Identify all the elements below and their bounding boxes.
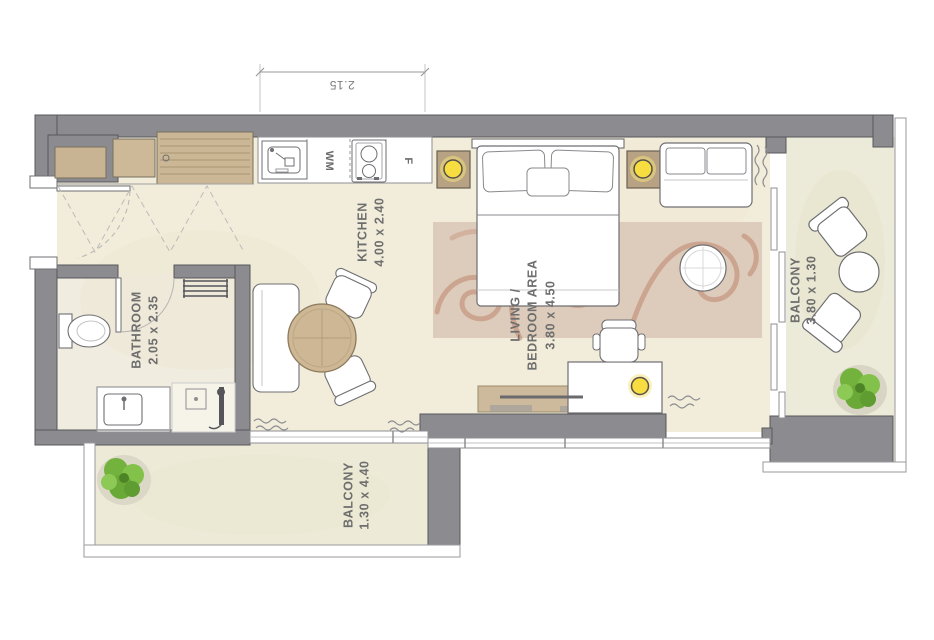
balcony-table <box>839 252 879 292</box>
kitchen-label: KITCHEN <box>355 202 369 262</box>
dimension-value: 2.15 <box>329 78 354 92</box>
nightstand-left <box>437 151 470 188</box>
washing-machine-label: WM <box>323 151 335 172</box>
wall-bathroom-right <box>235 265 250 445</box>
hob-icon <box>352 140 386 182</box>
nightstand-right <box>627 151 660 188</box>
wardrobe-cabinet <box>113 139 155 177</box>
wall-slider-stub <box>766 137 786 153</box>
vanity-sink-icon <box>97 387 170 432</box>
entry-door-leaf <box>57 186 130 191</box>
living-size-label: 3.80 x 4.50 <box>543 280 557 349</box>
railing-balcony-right-side <box>895 118 906 472</box>
toilet-icon <box>59 314 110 348</box>
lamp-icon <box>634 160 652 178</box>
sliding-door-balcony-right <box>771 188 785 418</box>
coffee-table-icon <box>680 245 726 291</box>
wall-top-right-corner <box>873 115 893 147</box>
wall-bathroom-top-left <box>57 265 118 278</box>
balcony-bottom-size-label: 1.30 x 4.40 <box>357 460 371 529</box>
railing-balcony-bottom-left <box>84 443 95 557</box>
balcony-right-size-label: 3.80 x 1.30 <box>804 255 818 324</box>
kitchen-size-label: 4.00 x 2.40 <box>372 197 386 266</box>
lamp-icon <box>444 160 462 178</box>
shower-icon <box>172 383 235 432</box>
wall-balcony-parapet <box>770 416 893 462</box>
wardrobe-nook <box>55 147 106 178</box>
floor-plan: WM F <box>0 0 934 640</box>
plant-icon <box>833 365 887 415</box>
railing-balcony-bottom <box>84 545 460 557</box>
wall-pillar <box>428 438 460 548</box>
fridge-label: F <box>402 157 414 164</box>
bathroom-size-label: 2.05 x 2.35 <box>146 295 160 364</box>
wall-living-bottom <box>420 414 666 440</box>
wall-left-bathroom <box>35 257 57 445</box>
desk-lamp-icon <box>632 378 649 395</box>
floor-plan-page: WM F <box>0 0 934 640</box>
living-label-line2: BEDROOM AREA <box>525 260 539 371</box>
dimension-top: 2.15 <box>256 64 429 112</box>
balcony-right-label: BALCONY <box>788 257 802 323</box>
sink-icon <box>262 141 307 179</box>
bathroom-door-leaf <box>116 278 121 332</box>
entry-door-jamb-bottom <box>30 257 57 269</box>
balcony-bottom-label: BALCONY <box>341 462 355 528</box>
bed-small-pillow <box>527 168 569 196</box>
entry-door-jamb-top <box>30 176 57 188</box>
plant-icon <box>97 455 151 505</box>
desk-icon <box>568 362 662 413</box>
wardrobe-sliding <box>157 132 253 184</box>
kitchen: WM F <box>258 137 432 183</box>
railing-balcony-right-bottom <box>763 462 906 472</box>
bathroom-label: BATHROOM <box>129 291 143 368</box>
living-label-line1: LIVING / <box>508 288 522 341</box>
sofa-icon <box>660 143 752 207</box>
